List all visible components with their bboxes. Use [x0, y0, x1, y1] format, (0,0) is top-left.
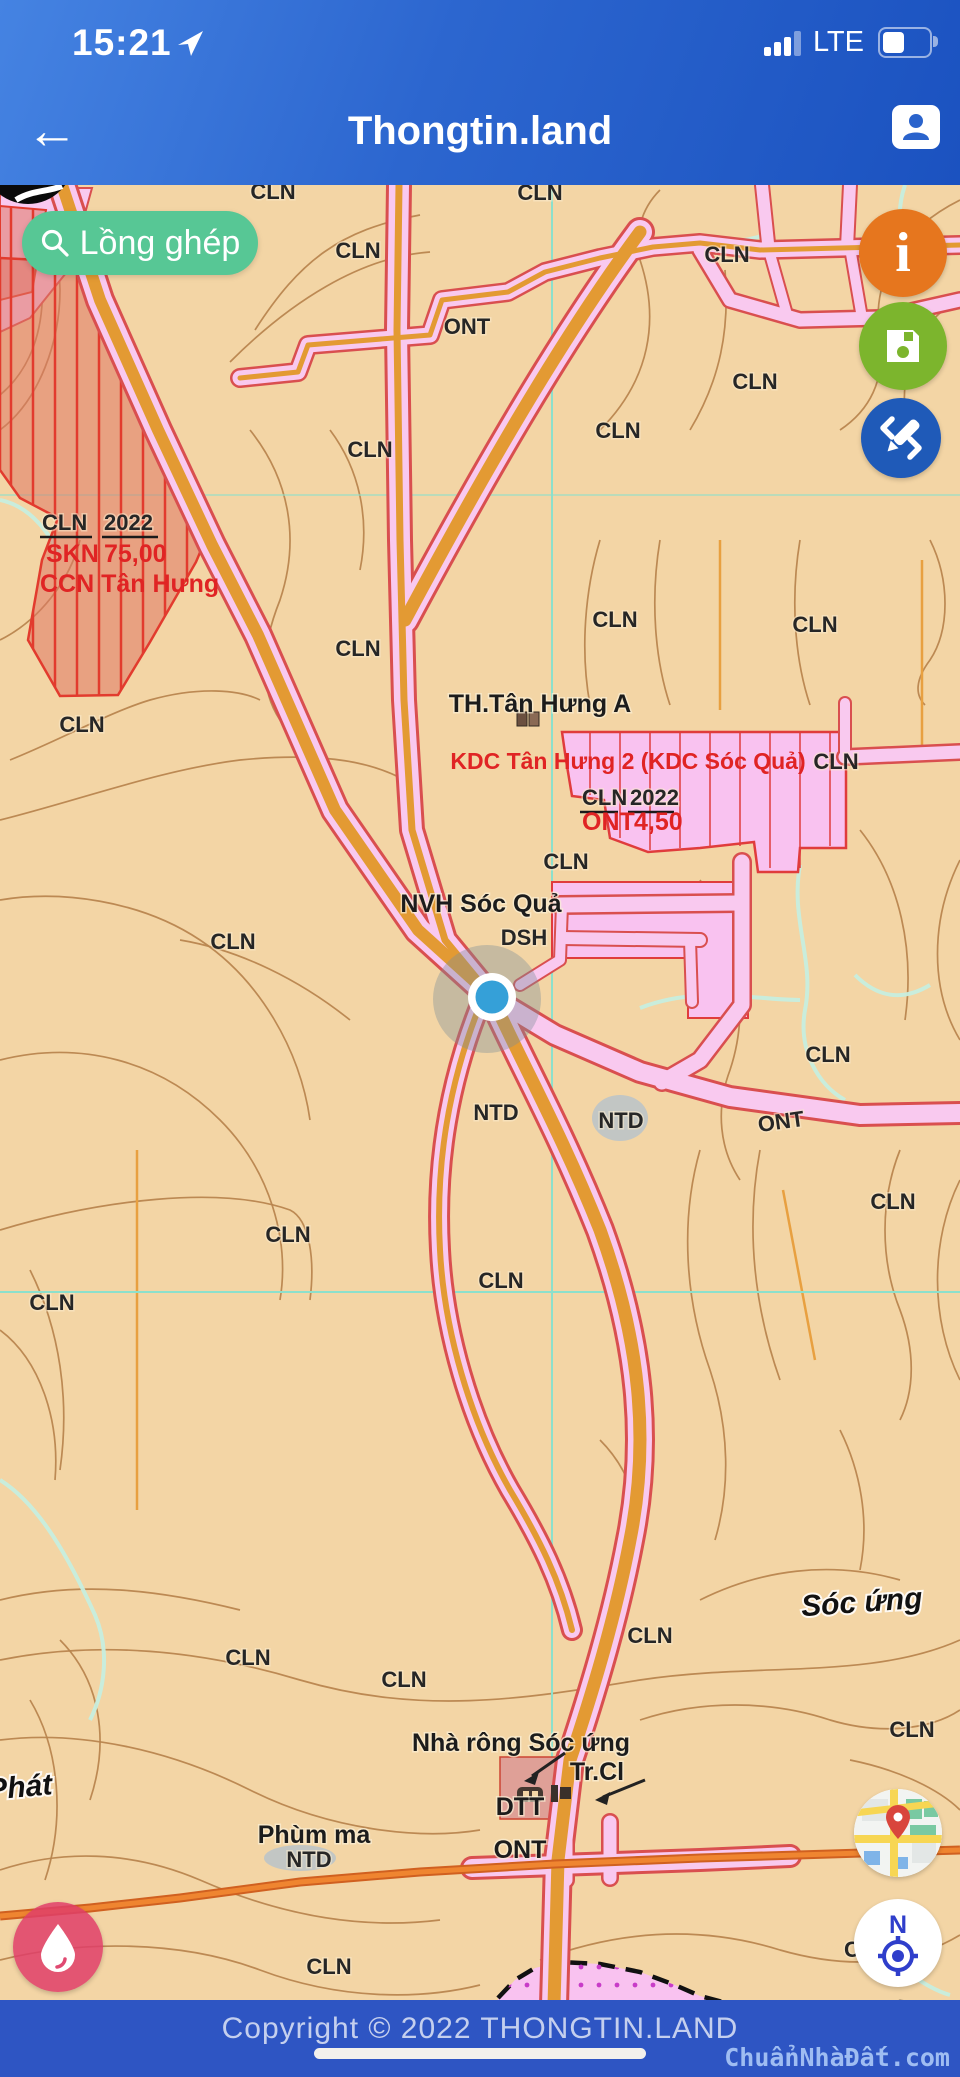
ccn-year-label: 2022 [104, 510, 153, 535]
app-bar: 15:21 LTE ← Thongtin.land [0, 0, 960, 185]
clock: 15:21 [72, 22, 172, 64]
cln-label: CLN [347, 437, 392, 462]
search-button-label: Lồng ghép [80, 224, 241, 263]
map-canvas[interactable]: CLN CLN CLN CLN CLN CLN CLN CLN CLN CLN … [0, 185, 960, 2077]
status-bar: 15:21 LTE [0, 18, 960, 68]
save-icon [880, 323, 926, 369]
location-arrow-icon [176, 28, 206, 63]
cln-label: CLN [478, 1268, 523, 1293]
ntd-label: NTD [286, 1847, 331, 1872]
cln-label: CLN [335, 238, 380, 263]
cln-label: CLN [592, 607, 637, 632]
kdc-code-label: ONT [582, 808, 635, 836]
search-button[interactable]: Lồng ghép [22, 211, 258, 275]
cln-label: CLN [627, 1623, 672, 1648]
info-icon: i [895, 221, 911, 285]
battery-icon [878, 27, 932, 58]
page-title: Thongtin.land [0, 109, 960, 154]
place-label-nha-rong: Nhà rông Sóc ứng [412, 1729, 630, 1757]
cln-label: CLN [813, 749, 858, 774]
place-label-th: TH.Tân Hưng A [449, 690, 631, 718]
cln-label: CLN [732, 369, 777, 394]
compass-button[interactable]: N [854, 1899, 942, 1987]
network-type: LTE [813, 26, 864, 59]
ccn-code-label: SKN [46, 540, 99, 568]
place-label-tr-cl: Tr.Cl [570, 1758, 624, 1786]
place-label-dtt: DTT [496, 1793, 545, 1821]
cln-label: CLN [543, 849, 588, 874]
copyright-text: Copyright © 2022 THONGTIN.LAND [0, 2012, 960, 2046]
cln-label: CLN [870, 1189, 915, 1214]
minimap-icon [854, 1789, 942, 1877]
cln-label: CLN [29, 1290, 74, 1315]
north-label: N [889, 1914, 907, 1936]
info-button[interactable]: i [859, 209, 947, 297]
footer-bar: Copyright © 2022 THONGTIN.LAND ChuẩnNhàĐ… [0, 2000, 960, 2077]
cln-label: CLN [792, 612, 837, 637]
ccn-name-label: CCN Tân Hưng [40, 570, 219, 598]
draw-route-button[interactable] [861, 398, 941, 478]
pencil-route-icon [875, 412, 927, 464]
ccn-area-label: 75,00 [104, 540, 167, 568]
cln-label: CLN [335, 636, 380, 661]
ont-label: ONT [494, 1836, 547, 1864]
place-label-phat: Phát [0, 1768, 56, 1807]
phone-screen: CLN CLN CLN CLN CLN CLN CLN CLN CLN CLN … [0, 0, 960, 2077]
cln-label: CLN [250, 185, 295, 204]
cln-label: CLN [59, 712, 104, 737]
person-icon [898, 110, 934, 144]
search-icon [40, 228, 70, 258]
water-layer-button[interactable] [13, 1902, 103, 1992]
cln-label: CLN [265, 1222, 310, 1247]
water-drop-icon [34, 1921, 82, 1973]
kdc-area-label: 4,50 [634, 808, 683, 836]
save-button[interactable] [859, 302, 947, 390]
kdc-use-label: CLN [582, 785, 627, 810]
ntd-label: NTD [473, 1100, 518, 1125]
cln-label: CLN [889, 1717, 934, 1742]
kdc-title-label: KDC Tân Hưng 2 (KDC Sóc Quả) [450, 748, 805, 774]
google-maps-button[interactable] [854, 1789, 942, 1877]
cln-label: CLN [805, 1042, 850, 1067]
ntd-label: NTD [598, 1108, 643, 1133]
watermark: ChuẩnNhàĐất.com [724, 2043, 950, 2072]
cln-label: CLN [595, 418, 640, 443]
compass-dial-icon [876, 1936, 920, 1978]
signal-strength-icon [764, 30, 801, 56]
cln-label: CLN [210, 929, 255, 954]
dsh-label: DSH [501, 925, 547, 950]
contact-button[interactable] [892, 105, 940, 149]
current-location-marker [433, 945, 541, 1053]
ccn-use-label: CLN [42, 510, 87, 535]
cln-label: CLN [225, 1645, 270, 1670]
home-indicator[interactable] [314, 2048, 646, 2059]
kdc-year-label: 2022 [630, 785, 679, 810]
cln-label: CLN [517, 185, 562, 205]
nav-bar: ← Thongtin.land [0, 85, 960, 185]
place-label-nvh: NVH Sóc Quả [400, 890, 562, 918]
cln-label: CLN [381, 1667, 426, 1692]
ont-label: ONT [444, 314, 491, 339]
place-label-phum-ma: Phùm ma [258, 1821, 372, 1849]
cln-label: CLN [306, 1954, 351, 1979]
cln-label: CLN [704, 242, 749, 267]
